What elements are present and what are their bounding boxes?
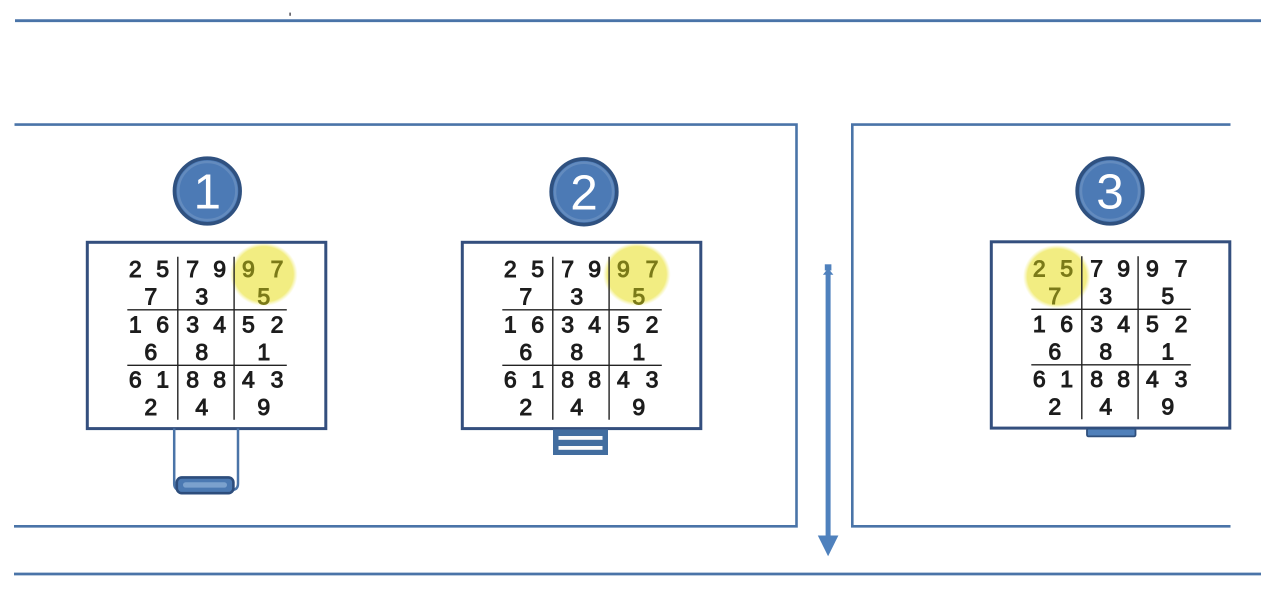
svg-text:9: 9 (588, 256, 601, 282)
svg-text:3: 3 (561, 311, 574, 337)
svg-text:4: 4 (617, 366, 630, 392)
svg-text:3: 3 (1175, 366, 1188, 392)
svg-text:6: 6 (156, 311, 169, 337)
svg-text:2: 2 (504, 256, 517, 282)
svg-text:1: 1 (504, 311, 517, 337)
svg-text:3: 3 (570, 283, 583, 309)
svg-text:6: 6 (531, 311, 544, 337)
svg-text:2: 2 (144, 394, 157, 420)
svg-text:8: 8 (588, 366, 601, 392)
svg-text:3: 3 (271, 366, 284, 392)
svg-text:7: 7 (1175, 255, 1188, 281)
svg-text:5: 5 (242, 311, 255, 337)
svg-text:1: 1 (632, 339, 645, 365)
svg-text:5: 5 (632, 283, 645, 309)
svg-text:1: 1 (257, 339, 270, 365)
svg-text:2: 2 (646, 311, 659, 337)
svg-text:6: 6 (1048, 338, 1061, 364)
svg-text:1: 1 (194, 165, 222, 220)
svg-text:4: 4 (1099, 393, 1112, 419)
svg-text:9: 9 (242, 256, 255, 282)
svg-text:6: 6 (129, 366, 142, 392)
svg-text:3: 3 (1090, 311, 1103, 337)
svg-text:1: 1 (1060, 366, 1073, 392)
svg-text:7: 7 (561, 256, 574, 282)
svg-text:5: 5 (257, 283, 270, 309)
svg-text:2: 2 (570, 165, 598, 220)
svg-text:2: 2 (1033, 255, 1046, 281)
svg-text:1: 1 (1033, 311, 1046, 337)
svg-text:9: 9 (1161, 393, 1174, 419)
svg-text:8: 8 (213, 366, 226, 392)
svg-text:5: 5 (617, 311, 630, 337)
svg-text:8: 8 (186, 366, 199, 392)
svg-text:9: 9 (257, 394, 270, 420)
svg-text:7: 7 (144, 283, 157, 309)
svg-text:3: 3 (195, 283, 208, 309)
svg-text:8: 8 (561, 366, 574, 392)
svg-text:5: 5 (1060, 255, 1073, 281)
svg-text:7: 7 (1090, 255, 1103, 281)
svg-text:4: 4 (213, 311, 226, 337)
svg-text:9: 9 (213, 256, 226, 282)
svg-text:8: 8 (1117, 366, 1130, 392)
svg-text:5: 5 (156, 256, 169, 282)
svg-text:7: 7 (519, 283, 532, 309)
svg-text:3: 3 (1099, 283, 1112, 309)
svg-text:4: 4 (195, 394, 208, 420)
svg-text:9: 9 (1146, 255, 1159, 281)
svg-text:2: 2 (519, 394, 532, 420)
svg-text:9: 9 (1117, 255, 1130, 281)
svg-text:6: 6 (144, 339, 157, 365)
svg-text:6: 6 (1033, 366, 1046, 392)
svg-text:6: 6 (504, 366, 517, 392)
svg-text:8: 8 (1099, 338, 1112, 364)
svg-text:3: 3 (1096, 165, 1124, 220)
svg-text:4: 4 (242, 366, 255, 392)
svg-text:5: 5 (1146, 311, 1159, 337)
svg-text:7: 7 (646, 256, 659, 282)
svg-text:7: 7 (271, 256, 284, 282)
svg-text:1: 1 (156, 366, 169, 392)
svg-text:4: 4 (588, 311, 601, 337)
svg-text:8: 8 (195, 339, 208, 365)
svg-text:8: 8 (1090, 366, 1103, 392)
svg-text:7: 7 (1048, 283, 1061, 309)
svg-text:4: 4 (1146, 366, 1159, 392)
svg-text:3: 3 (646, 366, 659, 392)
svg-text:2: 2 (129, 256, 142, 282)
svg-text:6: 6 (1060, 311, 1073, 337)
svg-text:1: 1 (531, 366, 544, 392)
svg-text:9: 9 (632, 394, 645, 420)
svg-text:2: 2 (1048, 393, 1061, 419)
svg-text:2: 2 (1175, 311, 1188, 337)
svg-text:8: 8 (570, 339, 583, 365)
svg-text:6: 6 (519, 339, 532, 365)
svg-text:4: 4 (570, 394, 583, 420)
svg-text:4: 4 (1117, 311, 1130, 337)
svg-text:3: 3 (186, 311, 199, 337)
svg-text:1: 1 (1161, 338, 1174, 364)
svg-text:7: 7 (186, 256, 199, 282)
svg-text:9: 9 (617, 256, 630, 282)
svg-text:5: 5 (1161, 283, 1174, 309)
svg-text:2: 2 (271, 311, 284, 337)
svg-text:1: 1 (129, 311, 142, 337)
svg-text:5: 5 (531, 256, 544, 282)
